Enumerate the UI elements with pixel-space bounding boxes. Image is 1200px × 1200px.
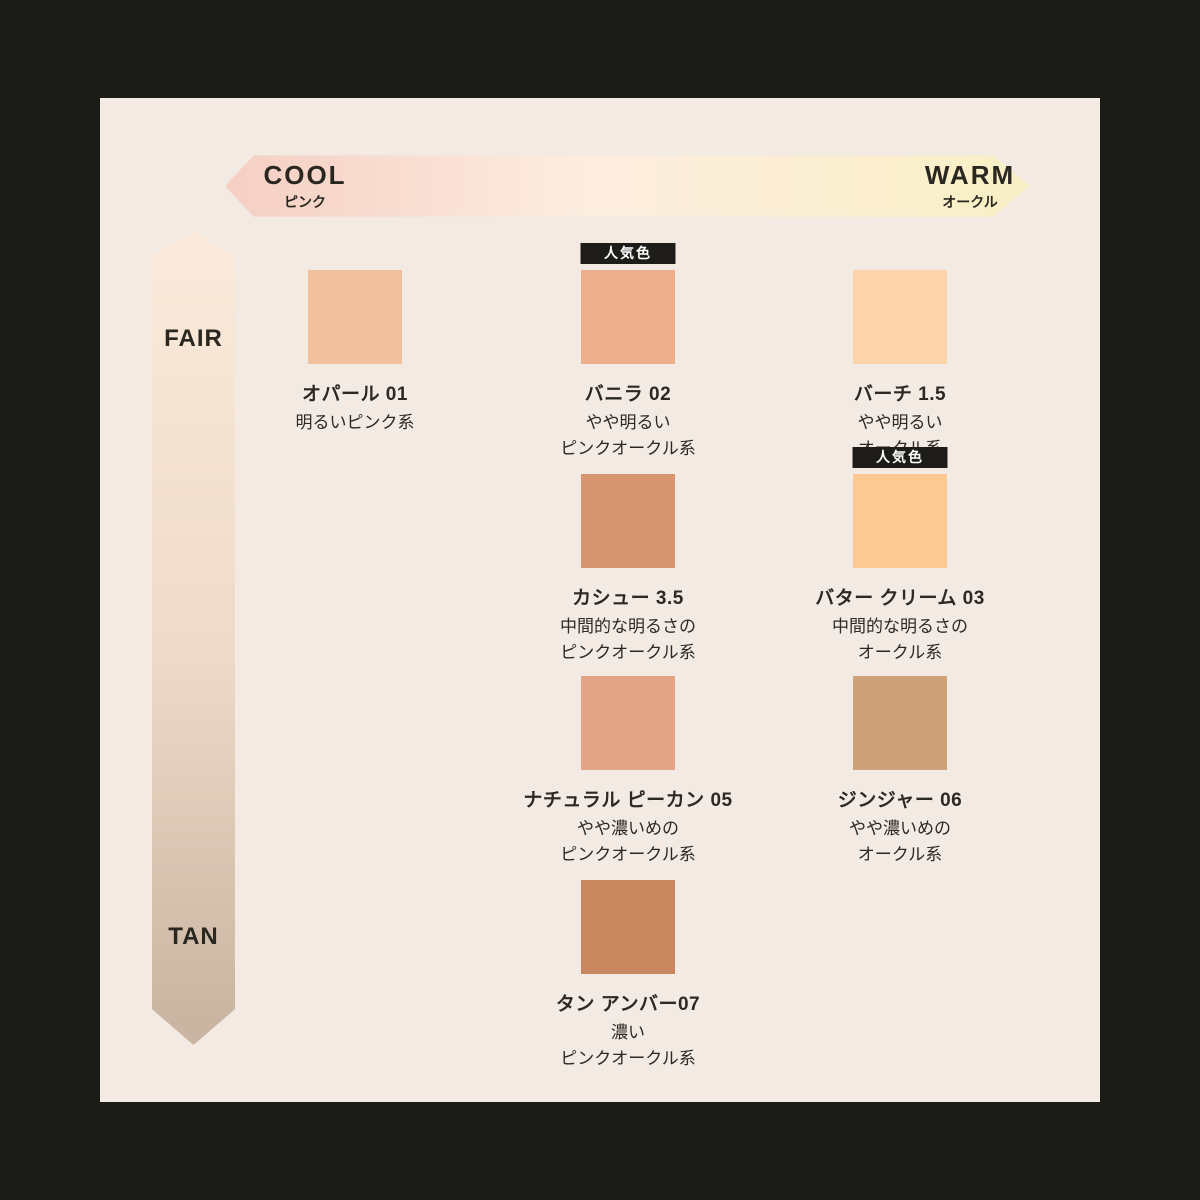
shade-swatch [581, 880, 675, 974]
shade-swatch [853, 270, 947, 364]
cool-label: COOL [240, 162, 370, 189]
shade-cell-opal-01: オパール 01 明るいピンク系 [245, 270, 465, 436]
shade-name: オパール 01 [245, 379, 465, 406]
warm-label: WARM [905, 162, 1035, 189]
shade-swatch [581, 474, 675, 568]
shade-cell-tan-amber-07: タン アンバー07 濃い ピンクオークル系 [518, 880, 738, 1071]
warm-sublabel: オークル [905, 192, 1035, 212]
popular-badge: 人気色 [853, 447, 948, 468]
shade-swatch [581, 676, 675, 770]
shade-name: ナチュラル ピーカン 05 [518, 785, 738, 812]
shade-name: カシュー 3.5 [518, 583, 738, 610]
shade-name: バニラ 02 [518, 379, 738, 406]
shade-cell-birch-1-5: バーチ 1.5 やや明るい オークル系 [790, 270, 1010, 461]
tan-label: TAN [152, 923, 235, 951]
shade-desc: 明るいピンク系 [245, 410, 465, 436]
shade-cell-butter-cream-03: 人気色 バター クリーム 03 中間的な明るさの オークル系 [790, 474, 1010, 665]
shade-desc: やや濃いめの オークル系 [790, 816, 1010, 867]
popular-badge: 人気色 [581, 243, 676, 264]
shade-name: バター クリーム 03 [790, 583, 1010, 610]
shade-cell-ginger-06: ジンジャー 06 やや濃いめの オークル系 [790, 676, 1010, 867]
shade-cell-vanilla-02: 人気色 バニラ 02 やや明るい ピンクオークル系 [518, 270, 738, 461]
shade-swatch [308, 270, 402, 364]
shade-desc: 濃い ピンクオークル系 [518, 1020, 738, 1071]
shade-swatch [853, 676, 947, 770]
shade-desc: やや濃いめの ピンクオークル系 [518, 816, 738, 867]
shade-desc: 中間的な明るさの オークル系 [790, 614, 1010, 665]
shade-chart-panel: COOL ピンク WARM オークル FAIR TAN オパール 01 明るいピ… [100, 98, 1100, 1102]
shade-swatch [853, 474, 947, 568]
shade-swatch [581, 270, 675, 364]
shade-name: バーチ 1.5 [790, 379, 1010, 406]
cool-sublabel: ピンク [240, 192, 370, 212]
shade-desc: やや明るい ピンクオークル系 [518, 410, 738, 461]
shade-name: ジンジャー 06 [790, 785, 1010, 812]
fair-label: FAIR [152, 325, 235, 353]
shade-cell-cashew-3-5: カシュー 3.5 中間的な明るさの ピンクオークル系 [518, 474, 738, 665]
shade-name: タン アンバー07 [518, 989, 738, 1016]
shade-desc: 中間的な明るさの ピンクオークル系 [518, 614, 738, 665]
page-background: { "page": { "frame_color": "#1b1b17", "p… [0, 0, 1200, 1200]
cool-axis-label: COOL ピンク [240, 162, 370, 212]
shade-cell-natural-pecan-05: ナチュラル ピーカン 05 やや濃いめの ピンクオークル系 [518, 676, 738, 867]
warm-axis-label: WARM オークル [905, 162, 1035, 212]
fair-tan-axis-band: FAIR TAN [152, 230, 235, 1045]
